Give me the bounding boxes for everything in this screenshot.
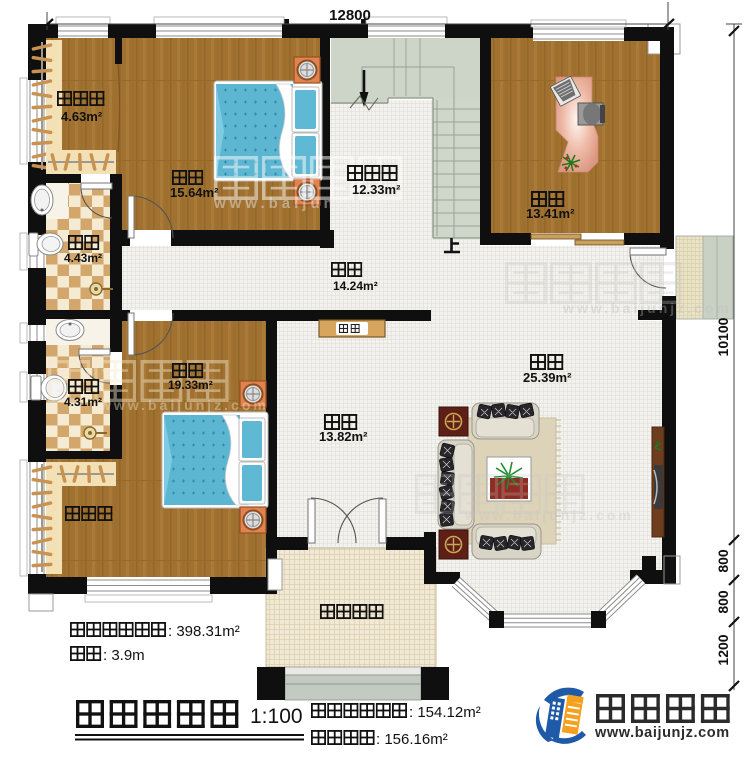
svg-text:12800: 12800 [329, 7, 371, 24]
svg-text:25.39m²: 25.39m² [523, 370, 572, 385]
svg-text:800: 800 [715, 590, 731, 614]
svg-text:14.24m²: 14.24m² [333, 279, 378, 293]
svg-text:www.baijunjz.com: www.baijunjz.com [99, 397, 269, 413]
svg-text:: 154.12m²: : 154.12m² [409, 704, 481, 721]
svg-text:800: 800 [715, 549, 731, 573]
svg-text:19.33m²: 19.33m² [168, 378, 213, 392]
svg-text:1:100: 1:100 [250, 705, 303, 728]
svg-text:12.33m²: 12.33m² [352, 182, 401, 197]
svg-text:: 3.9m: : 3.9m [103, 647, 145, 664]
svg-text:4.63m²: 4.63m² [61, 109, 103, 124]
svg-text:www.baijunjz.com: www.baijunjz.com [594, 725, 730, 741]
svg-text:10100: 10100 [715, 317, 731, 356]
svg-text:4.43m²: 4.43m² [64, 251, 102, 265]
svg-text:1200: 1200 [715, 634, 731, 665]
svg-text:: 156.16m²: : 156.16m² [376, 731, 448, 748]
svg-text:13.41m²: 13.41m² [526, 206, 575, 221]
svg-text:: 398.31m²: : 398.31m² [168, 623, 240, 640]
svg-text:www.baijunjz.com: www.baijunjz.com [213, 195, 407, 212]
svg-text:13.82m²: 13.82m² [319, 429, 368, 444]
svg-text:15.64m²: 15.64m² [170, 185, 219, 200]
svg-text:www.baijunjz.com: www.baijunjz.com [562, 300, 732, 316]
svg-text:4.31m²: 4.31m² [64, 395, 102, 409]
svg-text:www.baijunjz.com: www.baijunjz.com [464, 507, 634, 523]
